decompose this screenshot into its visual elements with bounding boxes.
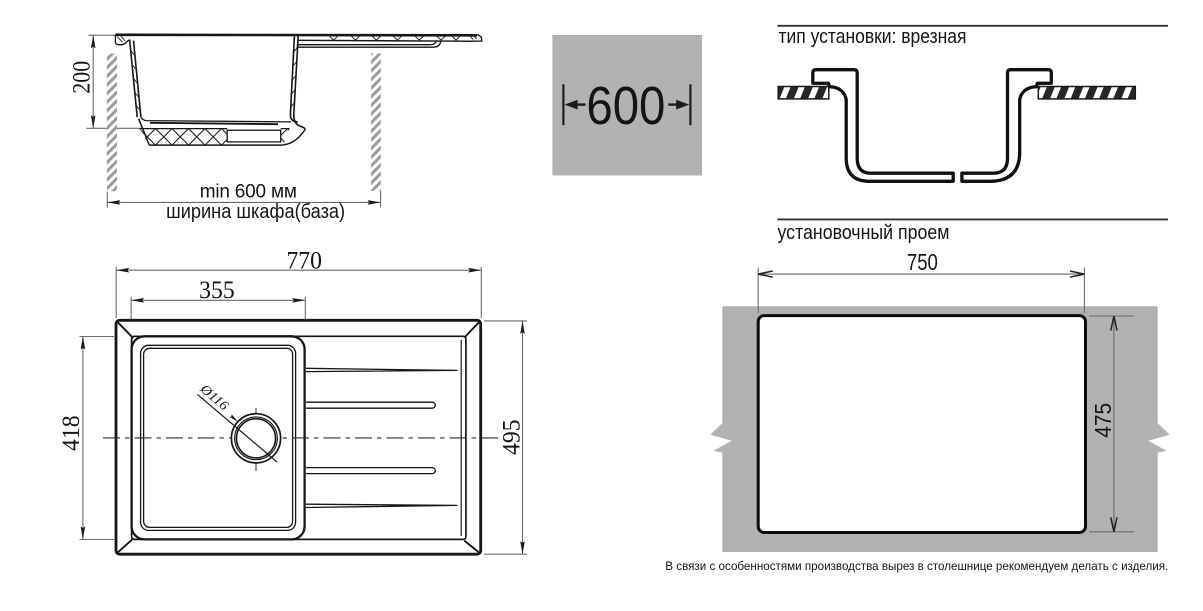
svg-text:200: 200 [68, 61, 95, 94]
svg-text:750: 750 [907, 249, 938, 275]
svg-text:min 600 мм: min 600 мм [200, 182, 297, 203]
svg-text:418: 418 [58, 415, 85, 451]
svg-text:355: 355 [199, 277, 235, 304]
svg-text:установочный проем: установочный проем [778, 222, 950, 244]
svg-text:ширина шкафа(база): ширина шкафа(база) [166, 201, 345, 223]
svg-text:475: 475 [1090, 403, 1116, 438]
svg-text:600: 600 [586, 76, 665, 136]
svg-text:495: 495 [499, 419, 526, 455]
svg-text:тип установки: врезная: тип установки: врезная [779, 26, 967, 48]
svg-text:770: 770 [286, 247, 322, 274]
svg-text:В связи с особенностями произв: В связи с особенностями производства выр… [665, 559, 1168, 573]
